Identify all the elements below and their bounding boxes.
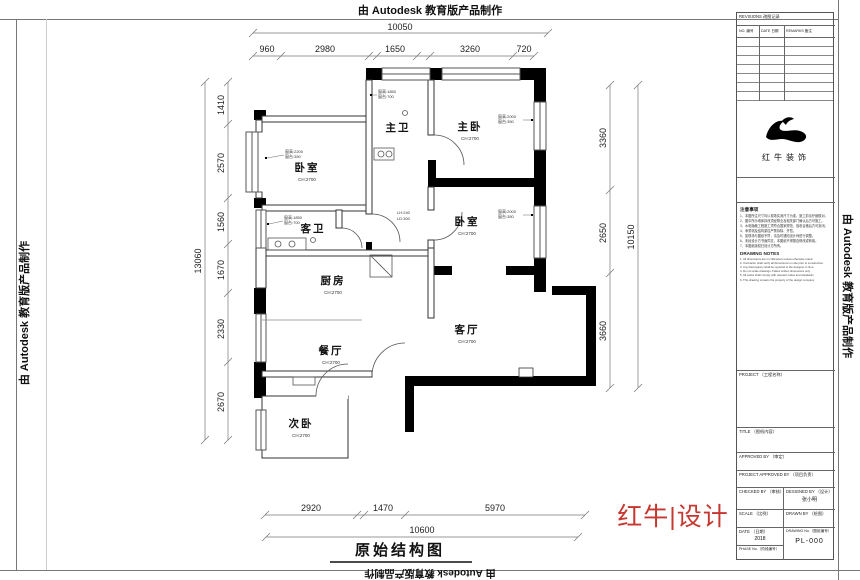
svg-text:2980: 2980 [315,44,335,54]
svg-text:CH:2700: CH:2700 [458,231,476,236]
dim-top-overall: 10050 [387,22,412,32]
drawn-by-label: DRAWN BY （绘图） [784,510,835,518]
notes-cell: 注意事项 1、本图所注尺寸均以现场实测尺寸为准，施工前请仔细核对。 2、图中所示… [737,203,835,371]
checked-by-cell: CHECKED BY （审核） [737,488,784,510]
svg-text:2670: 2670 [216,392,226,412]
dim-right-overall: 10150 [626,224,636,249]
room-label-bedroom-right: 卧室 [455,215,480,228]
svg-text:CH:2700: CH:2700 [322,360,340,365]
note-en-item: 6. This drawing remains the property of … [740,278,832,282]
svg-text:1560: 1560 [216,212,226,232]
drawing-sheet: 由 Autodesk 教育版产品制作 由 Autodesk 教育版产品制作 由 … [0,0,860,580]
bull-logo-icon [760,115,812,149]
step-symbol [293,377,315,385]
svg-text:窗台:350: 窗台:350 [498,213,515,219]
revision-row [737,92,833,101]
svg-text:3260: 3260 [460,44,480,54]
revisions-col-date: DATE 日期 [759,28,781,35]
revisions-header-label: REVISIONS 改图记录 [737,13,835,21]
revisions-col-no: NO. 编号 [737,28,756,35]
floor-plan-drawing: 主卫 主卧 卧室 卧室 客卫 厨房 客厅 餐厅 次卧 CH:2700 CH:27… [0,0,736,580]
note-cn-item: 6、未经设计方书面同意，本图纸不得擅自修改或转用。 [740,239,832,244]
svg-text:窗台:700: 窗台:700 [378,93,395,99]
svg-text:LD:300: LD:300 [397,216,411,221]
title-label: TITLE （图纸内容） [737,428,835,436]
project-approved-cell: PROJECT APPROVED BY （项目负责） [737,471,835,488]
svg-text:2570: 2570 [216,153,226,173]
svg-text:CH:2700: CH:2700 [292,433,310,438]
svg-text:5970: 5970 [485,503,505,513]
designed-by-value: 张小明 [784,496,835,503]
drawn-by-cell: DRAWN BY （绘图） [784,510,835,528]
svg-text:LH:240: LH:240 [397,210,411,215]
project-label: PROJECT （工程名称） [737,371,835,379]
scale-label: SCALE （比例） [737,510,783,518]
svg-text:CH:2700: CH:2700 [458,339,476,344]
room-label-second-bedroom: 次卧 [289,417,314,430]
revision-row [737,47,833,56]
autodesk-banner-right: 由 Autodesk 教育版产品制作 [840,166,856,406]
drawing-no-value: PL-000 [784,538,835,545]
revision-row [737,65,833,74]
designed-by-label: DESIGNED BY （设计） [784,488,835,496]
brand-logo-red: 红牛|设计 [612,497,734,533]
svg-text:窗台:350: 窗台:350 [498,118,515,124]
svg-text:窗台:700: 窗台:700 [284,219,301,225]
dimension-lines [201,29,642,541]
scale-cell: SCALE （比例） [737,510,784,528]
checked-by-label: CHECKED BY （审核） [737,488,783,496]
company-logo-cell: 红牛装饰 [737,101,835,178]
room-label-master-bedroom: 主卧 [458,120,483,133]
room-label-kitchen: 厨房 [321,274,346,287]
revisions-colheads: NO. 编号 DATE 日期 REMARKS 备注 [737,26,835,38]
note-guest-bath-window: 窗高:1850 窗台:700 [267,214,303,225]
room-label-guest-bath: 客卫 [300,222,326,235]
room-label-master-bath: 主卫 [386,121,411,134]
dim-left-overall: 13060 [193,248,203,273]
note-master-bath-window: 窗高:1850 窗台:700 [370,88,397,99]
date-label: DATE （日期） [737,528,783,536]
svg-text:960: 960 [259,44,274,54]
notes-cn-header: 注意事项 [740,207,832,213]
empty-cell [737,178,835,203]
basin-counter-guest-bath [268,238,306,250]
phase-cell: PHASE No.（阶段编号） [737,546,784,560]
phase-label: PHASE No.（阶段编号） [737,546,783,553]
revisions-divider [784,26,785,101]
svg-text:2650: 2650 [598,223,608,243]
project-cell: PROJECT （工程名称） [737,371,835,428]
note-master-bedroom-window: 窗高:2000 窗台:350 [498,113,533,124]
note-bedroom-left-window: 窗高:2200 窗台:350 [265,148,304,159]
svg-text:1650: 1650 [385,44,405,54]
revisions-col-remarks: REMARKS 备注 [784,28,814,35]
drawing-no-label: DRAWING No.（图纸编号） [784,528,835,535]
note-cn-item: 7、本图纸版权归设计方所有。 [740,244,832,249]
company-name: 红牛装饰 [762,152,810,163]
note-bedroom-right-window: 窗高:2000 窗台:350 [498,208,533,219]
floor-drain-guest-bath [311,238,316,243]
door-opening-second-bedroom [316,394,348,399]
revision-row [737,74,833,83]
room-label-dining-room: 餐厅 [318,344,344,357]
room-label-bedroom-left: 卧室 [295,161,320,174]
wall-niche [519,368,533,377]
drawing-no-cell: DRAWING No.（图纸编号） PL-000 [784,528,835,560]
svg-text:CH:2700: CH:2700 [324,290,342,295]
notes-en-header: DRAWING NOTES [740,251,832,256]
svg-text:CH:2700: CH:2700 [298,177,316,182]
plan-title: 原始结构图 [355,541,445,559]
svg-text:1470: 1470 [373,503,393,513]
svg-text:窗台:350: 窗台:350 [285,153,302,159]
svg-text:3660: 3660 [598,321,608,341]
svg-text:720: 720 [516,44,531,54]
designed-by-cell: DESIGNED BY （设计） 张小明 [784,488,835,510]
floor-drain-master-bath [403,111,408,116]
revisions-header: REVISIONS 改图记录 [737,13,835,26]
svg-text:2920: 2920 [301,503,321,513]
dim-bottom-overall: 10600 [409,525,434,535]
note-beam: LH:240 LD:300 [397,210,411,221]
date-cell: DATE （日期） 2018 [737,528,784,546]
svg-text:1410: 1410 [216,95,226,115]
title-cell: TITLE （图纸内容） [737,428,835,453]
svg-text:1670: 1670 [216,260,226,280]
approved-cell: APPROVED BY （审定） [737,453,835,471]
room-label-living-room: 客厅 [454,323,480,336]
svg-text:3360: 3360 [598,128,608,148]
revision-row [737,38,833,47]
frame-right [838,0,839,580]
revision-row [737,83,833,92]
revisions-divider [759,26,760,101]
window-annotations: 窗高:1850 窗台:700 窗高:2200 窗台:350 窗高:1850 窗台… [265,88,533,225]
svg-text:2330: 2330 [216,319,226,339]
project-approved-label: PROJECT APPROVED BY （项目负责） [737,471,835,479]
revision-row [737,56,833,65]
svg-text:CH:2700: CH:2700 [461,136,479,141]
date-value: 2018 [737,536,783,542]
title-block: REVISIONS 改图记录 NO. 编号 DATE 日期 REMARKS 备注… [736,12,834,560]
approved-label: APPROVED BY （审定） [737,453,835,461]
